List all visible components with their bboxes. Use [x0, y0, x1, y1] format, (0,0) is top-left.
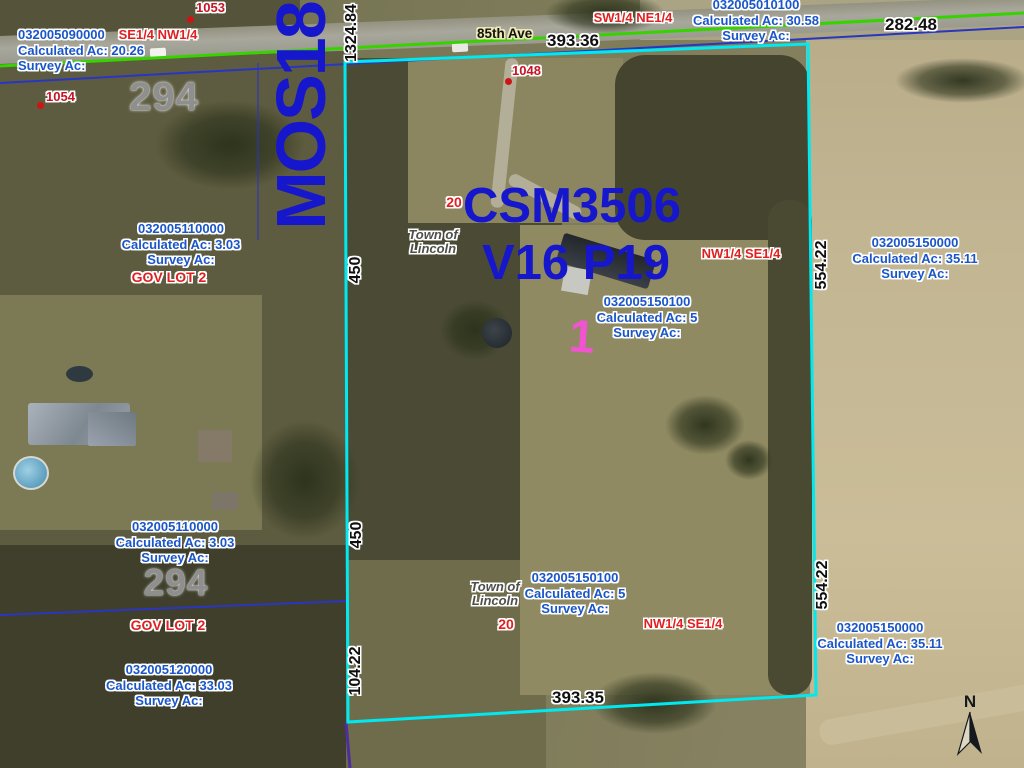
parcel-survey-acres: Survey Ac:: [852, 266, 977, 282]
parcel-survey-acres: Survey Ac:: [106, 693, 232, 709]
parcel-calc-acres: Calculated Ac: 5: [597, 310, 698, 326]
dimension-east-lower: 554.22: [814, 561, 832, 610]
parcel-label-150000-lower: 032005150000 Calculated Ac: 35.11 Survey…: [817, 620, 942, 667]
dimension-north-right: 282.48: [885, 15, 937, 35]
csm-label-line1: CSM3506: [463, 178, 681, 234]
address-point-1053: [187, 16, 194, 23]
quarter-label-sw-ne: SW1/4 NE1/4: [594, 11, 673, 26]
section-number-upper: 294: [129, 74, 199, 120]
gov-lot-label-lower: GOV LOT 2: [131, 617, 206, 633]
parcel-survey-acres: Survey Ac:: [18, 58, 144, 74]
section-20-upper: 20: [446, 194, 462, 210]
parcel-survey-acres: Survey Ac:: [116, 550, 235, 566]
parcel-id: 032005110000: [116, 519, 235, 535]
parcel-label-120000: 032005120000 Calculated Ac: 33.03 Survey…: [106, 662, 232, 709]
dimension-west-upper: 450: [347, 257, 365, 284]
town-label-upper: Town of Lincoln: [408, 228, 457, 256]
north-arrow-west-half: [958, 712, 970, 754]
north-arrow: N: [948, 690, 992, 766]
gis-parcel-map: MOS18 CSM3506 V16 P19 294 294 1 85th Ave…: [0, 0, 1024, 768]
parcel-calc-acres: Calculated Ac: 5: [525, 586, 626, 602]
address-point-1048: [505, 78, 512, 85]
section-line-south: [346, 722, 350, 768]
parcel-calc-acres: Calculated Ac: 35.11: [817, 636, 942, 652]
parcel-calc-acres: Calculated Ac: 30.58: [693, 13, 819, 29]
parcel-label-010100: 032005010100 Calculated Ac: 30.58 Survey…: [693, 0, 819, 44]
parcel-survey-acres: Survey Ac:: [693, 28, 819, 44]
address-label-1053: 1053: [196, 1, 225, 16]
parcel-calc-acres: Calculated Ac: 3.03: [122, 237, 241, 253]
parcel-survey-acres: Survey Ac:: [597, 325, 698, 341]
section-number-lower: 294: [144, 562, 209, 605]
parcel-calc-acres: Calculated Ac: 35.11: [852, 251, 977, 267]
subject-parcel-boundary: [345, 44, 816, 722]
parcel-label-150100-lower: 032005150100 Calculated Ac: 5 Survey Ac:: [525, 570, 626, 617]
parcel-survey-acres: Survey Ac:: [817, 651, 942, 667]
dimension-west-bottom: 104.22: [347, 647, 365, 696]
parcel-label-110000-upper: 032005110000 Calculated Ac: 3.03 Survey …: [122, 221, 241, 268]
parcel-id: 032005150000: [817, 620, 942, 636]
gov-lot-label-upper: GOV LOT 2: [132, 269, 207, 285]
parcel-calc-acres: Calculated Ac: 20.26: [18, 43, 144, 59]
csm-lot-number: 1: [567, 309, 596, 364]
address-label-1048: 1048: [512, 64, 541, 79]
dimension-south-bottom: 393.35: [552, 688, 604, 708]
road-name-label: 85th Ave: [477, 26, 532, 42]
parcel-id: 032005150100: [597, 294, 698, 310]
parcel-id: 032005150100: [525, 570, 626, 586]
address-label-1054: 1054: [46, 90, 75, 105]
town-label-lower: Town of Lincoln: [470, 580, 519, 608]
csm-label-line2: V16 P19: [482, 235, 670, 291]
dimension-west-frontage: 1324.84: [343, 4, 361, 62]
quarter-label-nw-se-upper: NW1/4 SE1/4: [702, 247, 781, 262]
parcel-survey-acres: Survey Ac:: [525, 601, 626, 617]
dimension-east-upper: 554.22: [813, 241, 831, 290]
north-arrow-label: N: [964, 692, 976, 711]
parcel-id: 032005010100: [693, 0, 819, 13]
quarter-label-nw-se-lower: NW1/4 SE1/4: [644, 617, 723, 632]
parcel-label-150000-upper: 032005150000 Calculated Ac: 35.11 Survey…: [852, 235, 977, 282]
quarter-label-se-nw: SE1/4 NW1/4: [119, 28, 198, 43]
parcel-calc-acres: Calculated Ac: 33.03: [106, 678, 232, 694]
parcel-calc-acres: Calculated Ac: 3.03: [116, 535, 235, 551]
parcel-label-110000-lower: 032005110000 Calculated Ac: 3.03 Survey …: [116, 519, 235, 566]
dimension-north-top: 393.36: [547, 31, 599, 51]
parcel-id: 032005110000: [122, 221, 241, 237]
address-point-1054: [37, 102, 44, 109]
dimension-west-lower: 450: [348, 522, 366, 549]
parcel-survey-acres: Survey Ac:: [122, 252, 241, 268]
mos-section-label: MOS18: [261, 2, 342, 229]
parcel-id: 032005120000: [106, 662, 232, 678]
north-arrow-east-half: [970, 712, 982, 754]
parcel-id: 032005150000: [852, 235, 977, 251]
parcel-label-150100-upper: 032005150100 Calculated Ac: 5 Survey Ac:: [597, 294, 698, 341]
section-20-lower: 20: [498, 616, 514, 632]
